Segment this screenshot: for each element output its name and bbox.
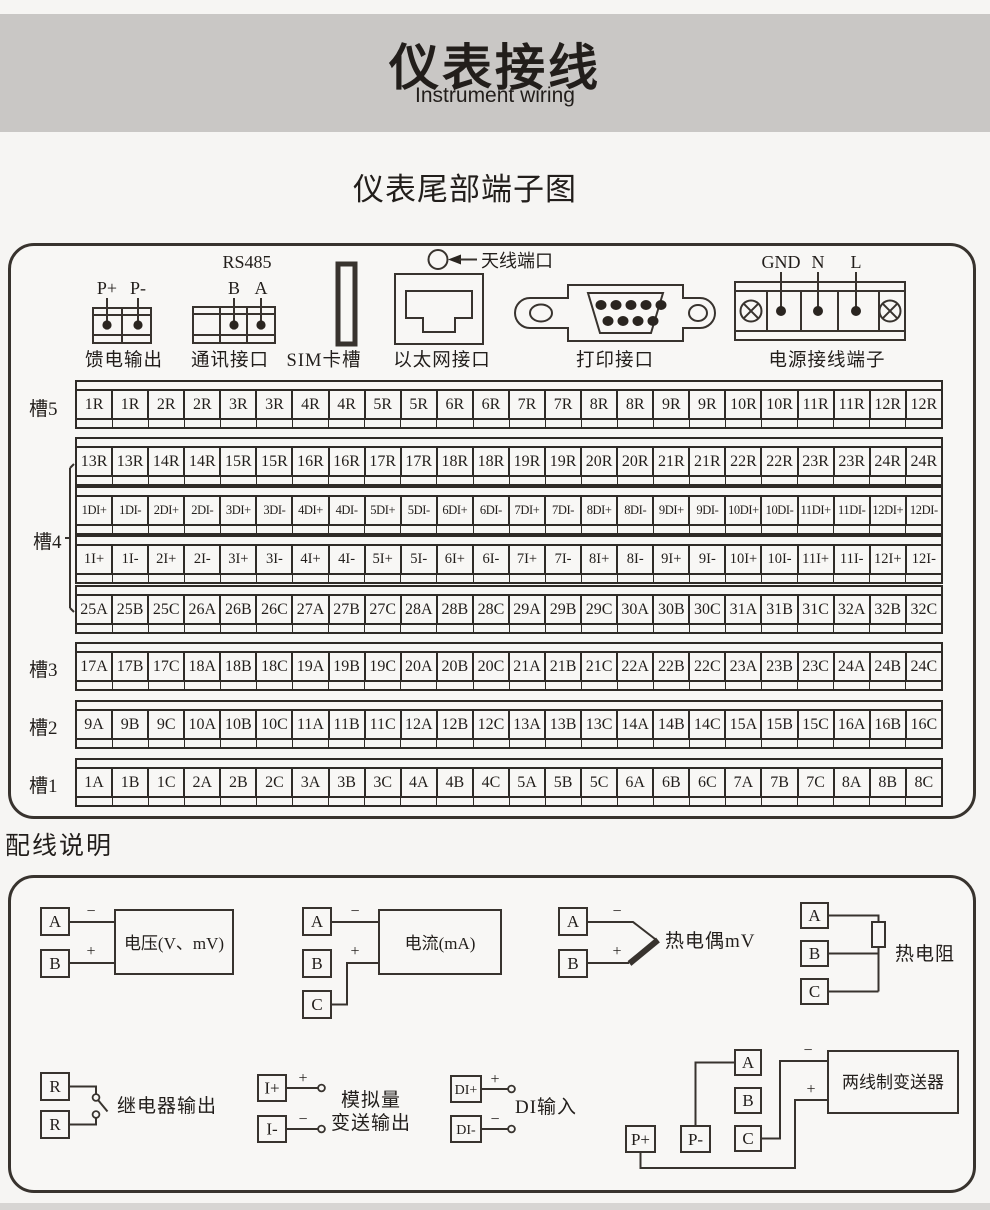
rail-tick — [689, 575, 725, 582]
rail-tick — [292, 477, 328, 484]
terminal-cell: 2C — [255, 769, 291, 796]
terminal-cell: 20A — [400, 653, 436, 680]
rail-tick — [473, 798, 509, 805]
rail-tick — [77, 575, 112, 582]
terminal-cell: 19R — [544, 448, 580, 475]
power-terminal: GND N L 电源接线端子 — [735, 252, 905, 371]
rail-tick — [148, 477, 184, 484]
terminal-cell: 8C — [905, 769, 941, 796]
rail-tick — [581, 625, 617, 632]
rail-tick — [473, 575, 509, 582]
pin-label: P+ — [97, 278, 117, 298]
contact-icon — [93, 1111, 100, 1118]
wire — [696, 1063, 736, 1127]
terminal-cell: 21R — [652, 448, 688, 475]
terminal-cell: 28C — [472, 596, 508, 623]
terminal-cell: 14R — [183, 448, 219, 475]
terminal-cell: 30C — [688, 596, 724, 623]
terminal-cells: 17A17B17C18A18B18C19A19B19C20A20B20C21A2… — [77, 653, 941, 680]
rail-tick — [77, 420, 112, 427]
rail-tick — [905, 682, 941, 689]
terminal-cell: 21B — [544, 653, 580, 680]
rail-tick — [725, 740, 761, 747]
rail-tick — [256, 477, 292, 484]
rail-tick — [761, 798, 797, 805]
printer-caption: 打印接口 — [576, 350, 654, 371]
minus-sign: − — [803, 1042, 812, 1059]
terminal-dot — [256, 320, 265, 329]
rail-tick — [905, 477, 941, 484]
rail-tick — [364, 740, 400, 747]
rail-tick — [473, 477, 509, 484]
terminal-cell: 16A — [833, 711, 869, 738]
rail-tick — [473, 526, 509, 533]
terminal-cell: 7A — [724, 769, 760, 796]
terminal-cell: 3B — [328, 769, 364, 796]
terminal-label: A — [808, 906, 821, 925]
terminal-cell: 4DI+ — [291, 497, 327, 524]
terminal-cell: 6A — [616, 769, 652, 796]
terminal-cell: 12I- — [905, 546, 941, 573]
terminal-cell: 1R — [111, 391, 147, 418]
relay-diagram: R R 继电器输出 — [41, 1073, 217, 1138]
rs485-label: RS485 — [222, 252, 271, 272]
terminal-cell: 7DI+ — [508, 497, 544, 524]
rail-tick — [689, 625, 725, 632]
rail-tick — [869, 477, 905, 484]
minus-sign: − — [350, 903, 359, 920]
terminal-label: C — [809, 982, 820, 1001]
rail-tick — [617, 798, 653, 805]
rail-tick — [617, 526, 653, 533]
device-label: 热电偶mV — [665, 930, 756, 952]
terminal-cell: 8DI- — [616, 497, 652, 524]
rail-tick — [148, 625, 184, 632]
rail-tick — [653, 798, 689, 805]
device-label: 变送输出 — [331, 1112, 411, 1134]
terminal-cell: 10R — [724, 391, 760, 418]
terminal-cells: 13R13R14R14R15R15R16R16R17R17R18R18R19R1… — [77, 448, 941, 475]
voltage-diagram: A B − + 电压(V、mV) — [41, 903, 233, 977]
terminal-label: A — [567, 912, 580, 931]
terminal-cell: 6I- — [472, 546, 508, 573]
terminal-cell: 21C — [580, 653, 616, 680]
rail-tick — [509, 798, 545, 805]
terminal-cell: 29C — [580, 596, 616, 623]
rail-tick — [509, 682, 545, 689]
slot-label-3: 槽3 — [29, 655, 58, 682]
terminal-cell: 15B — [760, 711, 796, 738]
resistor-icon — [872, 922, 885, 947]
rail-tick — [545, 740, 581, 747]
rail-tick — [545, 420, 581, 427]
terminal-cell: 27C — [364, 596, 400, 623]
rail-tick — [869, 740, 905, 747]
rail-tick — [364, 798, 400, 805]
terminal-label: DI- — [456, 1123, 476, 1138]
db9-pin — [611, 300, 622, 310]
device-label: 电压(V、mV) — [124, 934, 224, 953]
rail-tick — [689, 526, 725, 533]
rail-tick — [725, 798, 761, 805]
terminal-cell: 16C — [905, 711, 941, 738]
terminal-label: A — [742, 1053, 755, 1072]
terminal-cell: 3C — [364, 769, 400, 796]
terminal-cell: 9C — [147, 711, 183, 738]
rail-tick — [184, 420, 220, 427]
rail-tick — [509, 625, 545, 632]
terminal-cell: 11I+ — [797, 546, 833, 573]
rail-tick — [220, 526, 256, 533]
rail-tick — [833, 420, 869, 427]
terminal-cell: 18B — [219, 653, 255, 680]
slot-label-1: 槽1 — [29, 771, 58, 798]
terminal-cell: 20B — [436, 653, 472, 680]
rail-tick — [436, 740, 472, 747]
terminal-cell: 10R — [760, 391, 796, 418]
terminal-cell: 6R — [436, 391, 472, 418]
db9-pin — [648, 316, 659, 326]
terminal-cells: 9A9B9C10A10B10C11A11B11C12A12B12C13A13B1… — [77, 711, 941, 738]
rail-tick — [869, 526, 905, 533]
terminal-label: B — [809, 944, 820, 963]
rail-tick — [220, 740, 256, 747]
rail-tick — [509, 526, 545, 533]
rail-tick — [761, 682, 797, 689]
rail-tick — [725, 477, 761, 484]
rail-tick — [545, 682, 581, 689]
terminal-cell: 18R — [436, 448, 472, 475]
terminal-dot — [229, 320, 238, 329]
terminal-cell: 26B — [219, 596, 255, 623]
terminal-dot — [776, 306, 786, 316]
terminal-cell: 12R — [869, 391, 905, 418]
rail-tick — [436, 526, 472, 533]
rail-tick — [905, 798, 941, 805]
ethernet-outline — [395, 274, 483, 344]
switch-arm — [98, 1100, 108, 1112]
rail-tick — [184, 625, 220, 632]
terminal-label: I+ — [264, 1079, 279, 1098]
rail-tick — [436, 477, 472, 484]
comm-connector: RS485 B A 通讯接口 — [191, 252, 275, 371]
terminal-cell: 13R — [77, 448, 111, 475]
sim-slot-shape — [338, 264, 355, 344]
minus-sign: − — [298, 1111, 307, 1128]
plus-sign: + — [298, 1070, 307, 1087]
terminal-cell: 9B — [111, 711, 147, 738]
terminal-cell: 9DI+ — [652, 497, 688, 524]
terminal-cell: 1C — [147, 769, 183, 796]
terminal-cell: 16R — [291, 448, 327, 475]
rail-tick — [653, 682, 689, 689]
rail-tick — [112, 575, 148, 582]
terminal-cell: 14C — [688, 711, 724, 738]
screw-hole — [689, 305, 707, 321]
terminal-cell: 20C — [472, 653, 508, 680]
terminal-cell: 11A — [291, 711, 327, 738]
terminal-cell: 30A — [616, 596, 652, 623]
rail-tick — [148, 798, 184, 805]
rj45-shape — [406, 291, 472, 332]
rail-tick — [292, 798, 328, 805]
terminal-cell: 2A — [183, 769, 219, 796]
terminal-cell: 4I- — [328, 546, 364, 573]
rail-tick — [77, 625, 112, 632]
terminal-cells: 1I+1I-2I+2I-3I+3I-4I+4I-5I+5I-6I+6I-7I+7… — [77, 546, 941, 573]
rail-tick — [797, 682, 833, 689]
terminal-cells: 25A25B25C26A26B26C27A27B27C28A28B28C29A2… — [77, 596, 941, 623]
rail-tick — [220, 477, 256, 484]
feed-caption: 馈电输出 — [85, 350, 163, 371]
terminal-cell: 27B — [328, 596, 364, 623]
terminal-cell: 24R — [905, 448, 941, 475]
rail-tick — [617, 625, 653, 632]
rail-tick — [689, 477, 725, 484]
rail-tick — [148, 682, 184, 689]
terminal-cell: 4R — [328, 391, 364, 418]
rail-tick — [833, 740, 869, 747]
wire — [69, 1118, 96, 1125]
rail-tick — [509, 477, 545, 484]
terminal-cell: 19A — [291, 653, 327, 680]
rail-tick — [617, 740, 653, 747]
terminal-label: B — [567, 954, 578, 973]
terminal-cell: 3I- — [255, 546, 291, 573]
rail-tick — [400, 420, 436, 427]
terminal-cell: 12DI- — [905, 497, 941, 524]
rail-tick — [833, 625, 869, 632]
power-caption: 电源接线端子 — [768, 350, 885, 371]
terminal-cell: 5I- — [400, 546, 436, 573]
wire — [69, 1087, 96, 1095]
rail-tick — [328, 798, 364, 805]
plus-sign: + — [612, 943, 621, 960]
terminal-cell: 8R — [580, 391, 616, 418]
terminal-dot — [133, 320, 142, 329]
terminal-cell: 24A — [833, 653, 869, 680]
antenna-label: 天线端口 — [481, 251, 553, 271]
terminal-cell: 24C — [905, 653, 941, 680]
terminal-cell: 15C — [797, 711, 833, 738]
terminal-cell: 18C — [255, 653, 291, 680]
rail-tick — [292, 420, 328, 427]
rail-tick — [364, 526, 400, 533]
terminal-label: I- — [266, 1120, 278, 1139]
terminal-strip: 9A9B9C10A10B10C11A11B11C12A12B12C13A13B1… — [75, 700, 943, 749]
sim-caption: SIM卡槽 — [287, 350, 362, 371]
terminal-cell: 4DI- — [328, 497, 364, 524]
rail-tick — [473, 740, 509, 747]
terminal-cell: 22R — [724, 448, 760, 475]
rail-tick — [256, 420, 292, 427]
terminal-cell: 4I+ — [291, 546, 327, 573]
terminal-cell: 11C — [364, 711, 400, 738]
slot-label-4: 槽4 — [33, 527, 62, 554]
rail-tick — [545, 575, 581, 582]
terminal-cell: 4A — [400, 769, 436, 796]
terminal-cell: 3DI- — [255, 497, 291, 524]
pin-label: N — [812, 252, 825, 272]
rail-tick — [112, 420, 148, 427]
terminal-cell: 13B — [544, 711, 580, 738]
terminal-cell: 3I+ — [219, 546, 255, 573]
terminal-cell: 1B — [111, 769, 147, 796]
rail-tick — [436, 420, 472, 427]
terminal-cell: 14R — [147, 448, 183, 475]
rail-tick — [869, 575, 905, 582]
terminal-cell: 15R — [219, 448, 255, 475]
rail-tick — [256, 798, 292, 805]
rail-tick — [292, 575, 328, 582]
slot-label-2: 槽2 — [29, 713, 58, 740]
rail-tick — [761, 526, 797, 533]
device-label: 电流(mA) — [405, 934, 476, 953]
terminal-cell: 23A — [724, 653, 760, 680]
rail-tick — [436, 682, 472, 689]
terminal-cell: 11R — [797, 391, 833, 418]
terminal-cell: 31A — [724, 596, 760, 623]
rail-tick — [148, 420, 184, 427]
terminal-cell: 3R — [255, 391, 291, 418]
terminal-cell: 12DI+ — [869, 497, 905, 524]
terminal-cell: 32A — [833, 596, 869, 623]
terminal-cell: 21R — [688, 448, 724, 475]
analog-output-diagram: I+ I- + − 模拟量 变送输出 — [258, 1070, 411, 1142]
rail-tick — [653, 477, 689, 484]
terminal-cell: 5DI- — [400, 497, 436, 524]
rail-tick — [400, 526, 436, 533]
terminal-cell: 7DI- — [544, 497, 580, 524]
di-input-diagram: DI+ DI- + − DI输入 — [451, 1071, 577, 1142]
terminal-label: C — [311, 995, 322, 1014]
terminal-cell: 24B — [869, 653, 905, 680]
terminal-cell: 16B — [869, 711, 905, 738]
rail-tick — [112, 798, 148, 805]
rail-tick — [545, 526, 581, 533]
wiring-panel: A B − + 电压(V、mV) A B C − + 电流(mA) — [8, 875, 976, 1193]
terminal-cell: 10DI+ — [724, 497, 760, 524]
terminal-cell: 32B — [869, 596, 905, 623]
rail-tick — [400, 477, 436, 484]
terminal-cell: 13C — [580, 711, 616, 738]
bottom-band — [0, 1203, 990, 1210]
rail-tick — [725, 625, 761, 632]
terminal-cell: 17C — [147, 653, 183, 680]
terminal-cell: 9I- — [688, 546, 724, 573]
rail-tick — [328, 526, 364, 533]
terminal-dot — [851, 306, 861, 316]
comm-caption: 通讯接口 — [191, 350, 269, 371]
rail-tick — [797, 526, 833, 533]
contact-icon — [318, 1085, 325, 1092]
terminal-cell: 13R — [111, 448, 147, 475]
rail-tick — [77, 477, 112, 484]
rail-tick — [545, 625, 581, 632]
db9-pin — [656, 300, 667, 310]
terminal-cell: 1A — [77, 769, 111, 796]
terminal-cell: 20R — [580, 448, 616, 475]
terminal-cell: 11R — [833, 391, 869, 418]
terminal-cell: 13A — [508, 711, 544, 738]
terminal-cell: 9A — [77, 711, 111, 738]
terminal-cell: 2I- — [183, 546, 219, 573]
terminal-cell: 23B — [760, 653, 796, 680]
terminal-strip: 1R1R2R2R3R3R4R4R5R5R6R6R7R7R8R8R9R9R10R1… — [75, 380, 943, 429]
terminal-cell: 22C — [688, 653, 724, 680]
rail-tick — [581, 420, 617, 427]
rail-tick — [833, 575, 869, 582]
terminal-cell: 10DI- — [760, 497, 796, 524]
wire — [587, 922, 657, 941]
terminal-cell: 8I- — [616, 546, 652, 573]
contact-icon — [508, 1126, 515, 1133]
db9-pin — [626, 300, 637, 310]
rail-tick — [364, 420, 400, 427]
terminal-cell: 17B — [111, 653, 147, 680]
terminal-cell: 26C — [255, 596, 291, 623]
minus-sign: − — [490, 1111, 499, 1128]
terminal-cell: 17R — [400, 448, 436, 475]
feed-output-connector: P+ P- 馈电输出 — [85, 278, 163, 371]
rail-tick — [797, 420, 833, 427]
rail-tick — [77, 798, 112, 805]
terminal-cell: 12B — [436, 711, 472, 738]
terminal-cell: 9DI- — [688, 497, 724, 524]
slot-label-5: 槽5 — [29, 394, 58, 421]
db9-pin — [641, 300, 652, 310]
rail-tick — [473, 420, 509, 427]
terminal-cell: 15R — [255, 448, 291, 475]
terminal-cell: 7R — [544, 391, 580, 418]
rail-tick — [581, 575, 617, 582]
terminal-cell: 23R — [797, 448, 833, 475]
terminal-cell: 11DI+ — [797, 497, 833, 524]
pin-label: L — [851, 252, 862, 272]
contact-icon — [318, 1126, 325, 1133]
rail-tick — [328, 575, 364, 582]
rail-tick — [220, 625, 256, 632]
terminal-cell: 17R — [364, 448, 400, 475]
rail-tick — [328, 740, 364, 747]
rail-tick — [328, 625, 364, 632]
terminal-cell: 21A — [508, 653, 544, 680]
rail-tick — [112, 740, 148, 747]
terminal-cell: 2R — [183, 391, 219, 418]
terminal-cell: 25A — [77, 596, 111, 623]
terminal-label: B — [49, 954, 60, 973]
rail-tick — [77, 526, 112, 533]
terminal-cell: 12R — [905, 391, 941, 418]
plus-sign: + — [350, 943, 359, 960]
terminal-cell: 1DI+ — [77, 497, 111, 524]
terminal-cell: 6B — [652, 769, 688, 796]
terminal-strip: 1A1B1C2A2B2C3A3B3C4A4B4C5A5B5C6A6B6C7A7B… — [75, 758, 943, 807]
terminal-cell: 22B — [652, 653, 688, 680]
terminal-cell: 6C — [688, 769, 724, 796]
rail-tick — [833, 798, 869, 805]
rail-tick — [581, 798, 617, 805]
rail-tick — [545, 477, 581, 484]
wire — [331, 963, 379, 1005]
terminal-cell: 6R — [472, 391, 508, 418]
terminal-strip: 1I+1I-2I+2I-3I+3I-4I+4I-5I+5I-6I+6I-7I+7… — [75, 535, 943, 584]
terminal-dot — [813, 306, 823, 316]
terminal-cell: 22A — [616, 653, 652, 680]
rail-tick — [653, 420, 689, 427]
terminal-cell: 19R — [508, 448, 544, 475]
terminal-cell: 23C — [797, 653, 833, 680]
